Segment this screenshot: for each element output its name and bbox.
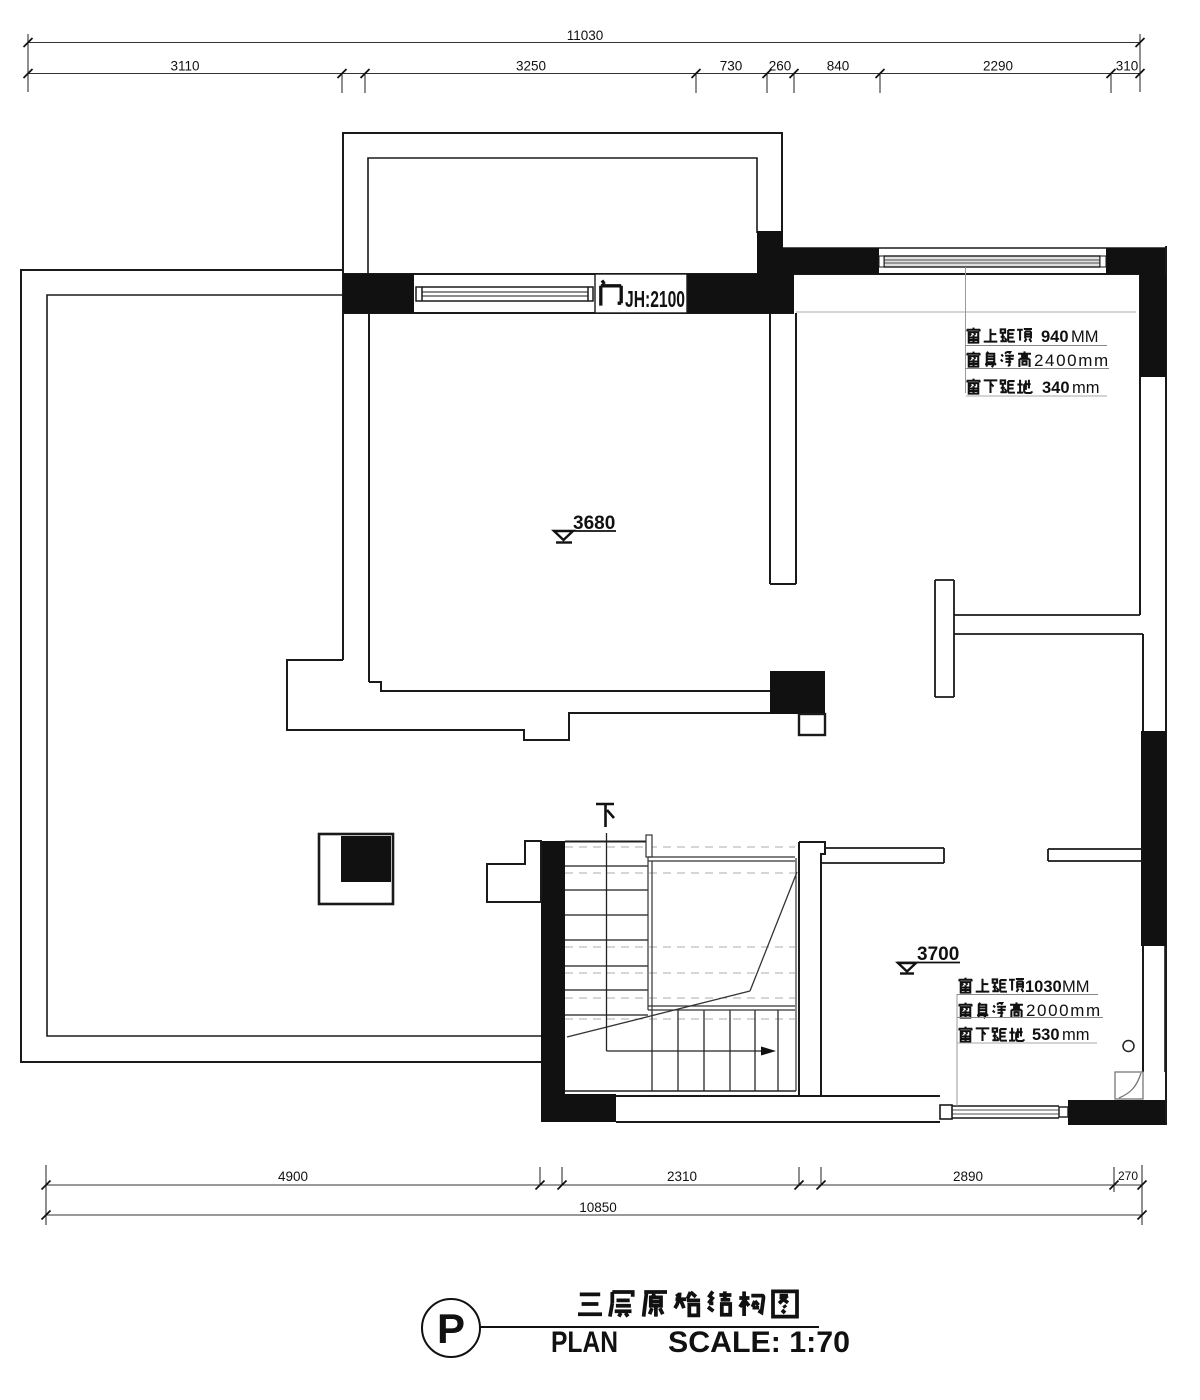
svg-text:840: 840 [827,59,850,74]
svg-text:3110: 3110 [170,59,199,74]
svg-text:310: 310 [1116,59,1139,74]
svg-text:2310: 2310 [667,1169,697,1184]
svg-text:JH:2100: JH:2100 [625,286,685,312]
svg-text:mm: mm [1072,379,1100,397]
svg-text:530: 530 [1032,1026,1060,1044]
svg-text:340: 340 [1042,379,1070,397]
svg-text:260: 260 [769,59,792,74]
svg-text:940: 940 [1041,328,1069,346]
svg-text:730: 730 [720,59,743,74]
svg-text:MM: MM [1071,328,1099,346]
svg-text:P: P [437,1305,465,1352]
svg-text:mm: mm [1062,1026,1090,1044]
svg-text:10850: 10850 [579,1200,617,1215]
svg-text:MM: MM [1062,978,1090,996]
svg-text:3250: 3250 [516,59,546,74]
svg-text:SCALE: 1:70: SCALE: 1:70 [668,1326,850,1359]
svg-text:PLAN: PLAN [551,1326,618,1359]
svg-text:2890: 2890 [953,1169,983,1184]
svg-text:2400mm: 2400mm [1034,351,1110,370]
svg-text:270: 270 [1118,1169,1138,1183]
svg-text:2290: 2290 [983,59,1013,74]
svg-text:11030: 11030 [567,28,604,43]
svg-text:1030: 1030 [1025,978,1062,996]
svg-text:4900: 4900 [278,1169,308,1184]
